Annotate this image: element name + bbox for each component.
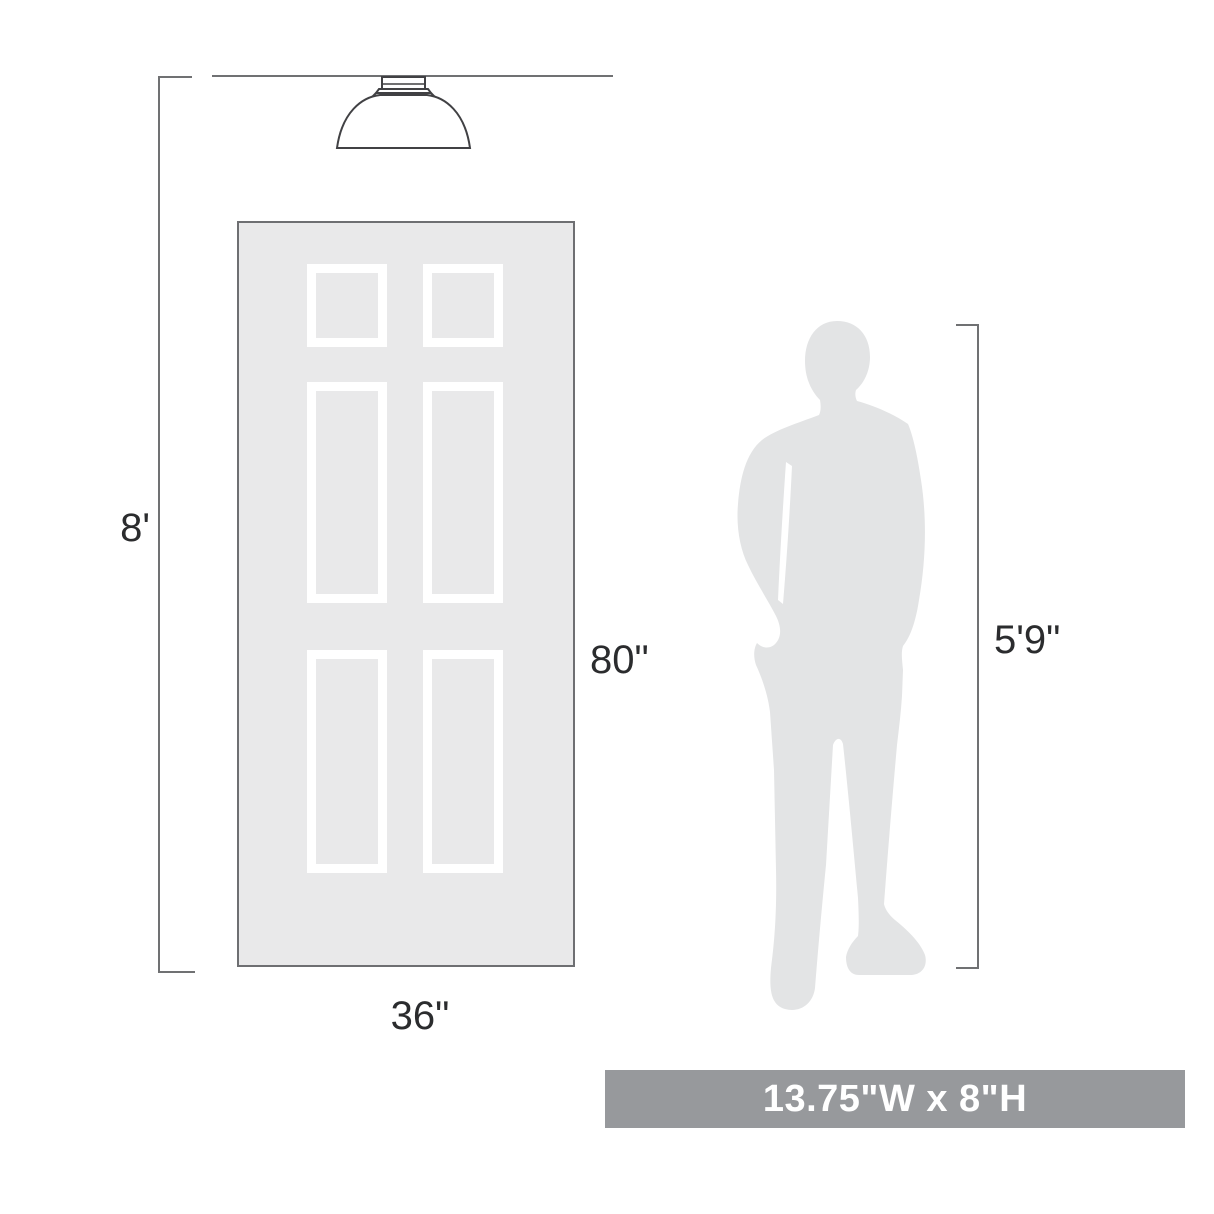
door-panel-bottom-right [423, 650, 503, 873]
product-dimensions-text: 13.75"W x 8"H [763, 1078, 1027, 1121]
person-height-dimension-line [956, 325, 978, 968]
door-panel-middle-left [307, 382, 387, 603]
door-panel-bottom-left [307, 650, 387, 873]
door [237, 221, 575, 967]
door-panel-top-left [307, 264, 387, 347]
man-silhouette [737, 321, 925, 1010]
flush-mount-light-icon [337, 77, 470, 148]
product-dimensions-banner: 13.75"W x 8"H [605, 1070, 1185, 1128]
ceiling-height-dimension-line [159, 77, 195, 972]
scale-diagram: 8' 80" 36" 5'9" 13.75"W x 8"H [0, 0, 1214, 1214]
door-panel-middle-right [423, 382, 503, 603]
ceiling-height-label: 8' [60, 508, 150, 548]
person-height-label: 5'9" [994, 620, 1060, 660]
door-panel-top-right [423, 264, 503, 347]
door-height-label: 80" [590, 640, 649, 680]
fixture-dome-shade [337, 95, 470, 148]
diagram-graphics [0, 0, 1214, 1214]
fixture-canopy [382, 77, 425, 89]
door-width-label: 36" [340, 996, 500, 1036]
